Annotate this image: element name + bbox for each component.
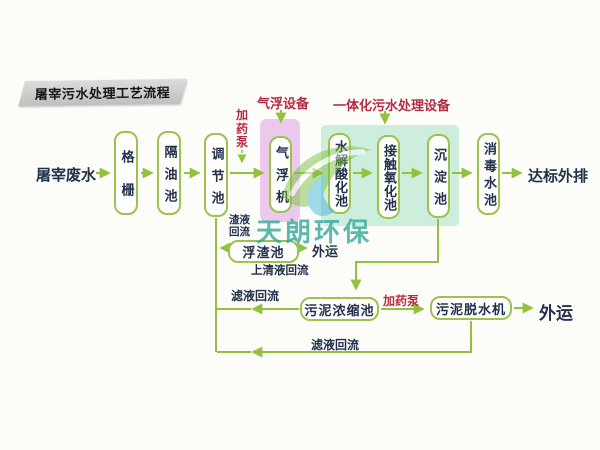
tank-sedimentation: 沉淀池 (427, 134, 450, 218)
slag-reflux-label: 渣液回流 (229, 215, 252, 238)
arrow-dewatering-filtrate-return (253, 321, 471, 352)
tank-scum: 浮渣池 (228, 240, 299, 263)
tank-regulating: 调节池 (204, 133, 228, 217)
influent-label: 屠宰废水 (36, 164, 96, 185)
connector-layer (0, 0, 600, 450)
integrated-equipment-label: 一体化污水处理设备 (333, 95, 450, 114)
tank-disinfection: 消毒水池 (477, 133, 500, 215)
tank-contact-oxidation: 接触氧化池 (377, 135, 400, 219)
outbound-scum-label: 外运 (312, 241, 338, 260)
tank-oil-separator: 隔油池 (157, 131, 181, 215)
effluent-label: 达标外排 (528, 165, 588, 186)
tank-air-flotation: 气浮机 (269, 136, 292, 213)
arrow-sedimentation-to-thickener (356, 219, 438, 289)
supernatant-reflux-label: 上清液回流 (251, 262, 309, 278)
tank-sludge-thickener: 污泥浓缩池 (300, 297, 379, 321)
dosing-pump-top-label: 加药泵 (235, 109, 249, 150)
filtrate-reflux-thickener-label: 滤液回流 (231, 287, 279, 304)
flowchart-canvas: 屠宰污水处理工艺流程 (0, 0, 600, 450)
tank-sludge-dewatering: 污泥脱水机 (430, 296, 512, 320)
dosing-pump-bottom-label: 加药泵 (383, 292, 419, 309)
flotation-equipment-label: 气浮设备 (257, 93, 309, 112)
tank-hydrolysis: 水解酸化池 (328, 133, 351, 214)
tank-grid: 格栅 (114, 131, 138, 215)
filtrate-reflux-dewatering-label: 滤液回流 (311, 336, 359, 353)
outbound-sludge-label: 外运 (539, 299, 573, 324)
